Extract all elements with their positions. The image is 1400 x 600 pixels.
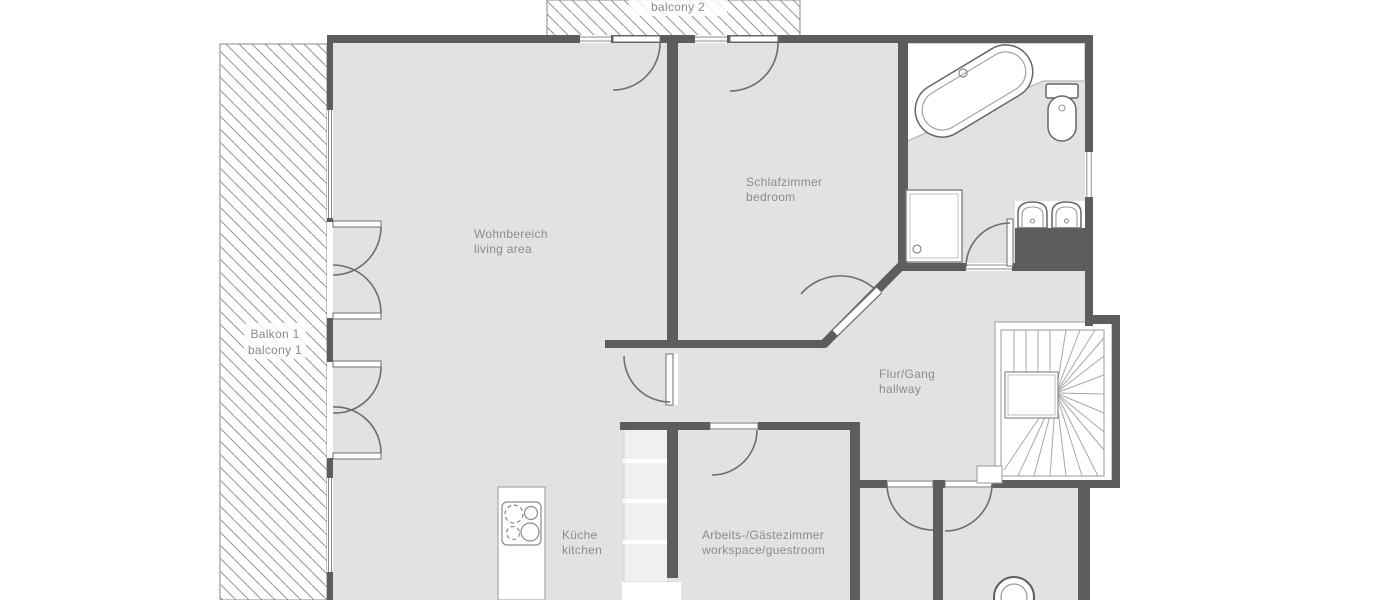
living-area-label-en: living area (474, 242, 532, 256)
window (327, 110, 333, 218)
hallway-label-de: Flur/Gang (879, 367, 935, 381)
workspace-label-en: workspace/guestroom (701, 543, 825, 557)
window (695, 35, 727, 43)
floor-plan-canvas: balcony 2 Balkon 1 balcony 1 Wohnbereich… (0, 0, 1400, 600)
window (1085, 152, 1093, 197)
kitchen-counter (498, 487, 545, 600)
floor-area (330, 40, 1090, 600)
toilet-icon (1046, 84, 1078, 141)
tall-cabinet (623, 425, 669, 582)
balcony-1-area (220, 44, 327, 600)
kitchen-label-en: kitchen (562, 543, 602, 557)
floor-plan-drawing: balcony 2 Balkon 1 balcony 1 Wohnbereich… (0, 0, 1400, 600)
workspace-label-de: Arbeits-/Gästezimmer (702, 528, 824, 542)
bedroom-label-en: bedroom (746, 190, 795, 204)
balcony-1-label-de: Balkon 1 (250, 327, 299, 341)
bottom-opening (622, 582, 681, 600)
balcony-1-label-en: balcony 1 (248, 343, 302, 357)
bedroom-label-de: Schlafzimmer (746, 175, 822, 189)
kitchen-label-de: Küche (562, 528, 598, 542)
window (327, 478, 333, 572)
window (580, 35, 611, 43)
living-area-label-de: Wohnbereich (474, 227, 548, 241)
shower-icon (906, 190, 962, 262)
hallway-label-en: hallway (879, 382, 921, 396)
balcony-2-label: balcony 2 (651, 0, 705, 14)
